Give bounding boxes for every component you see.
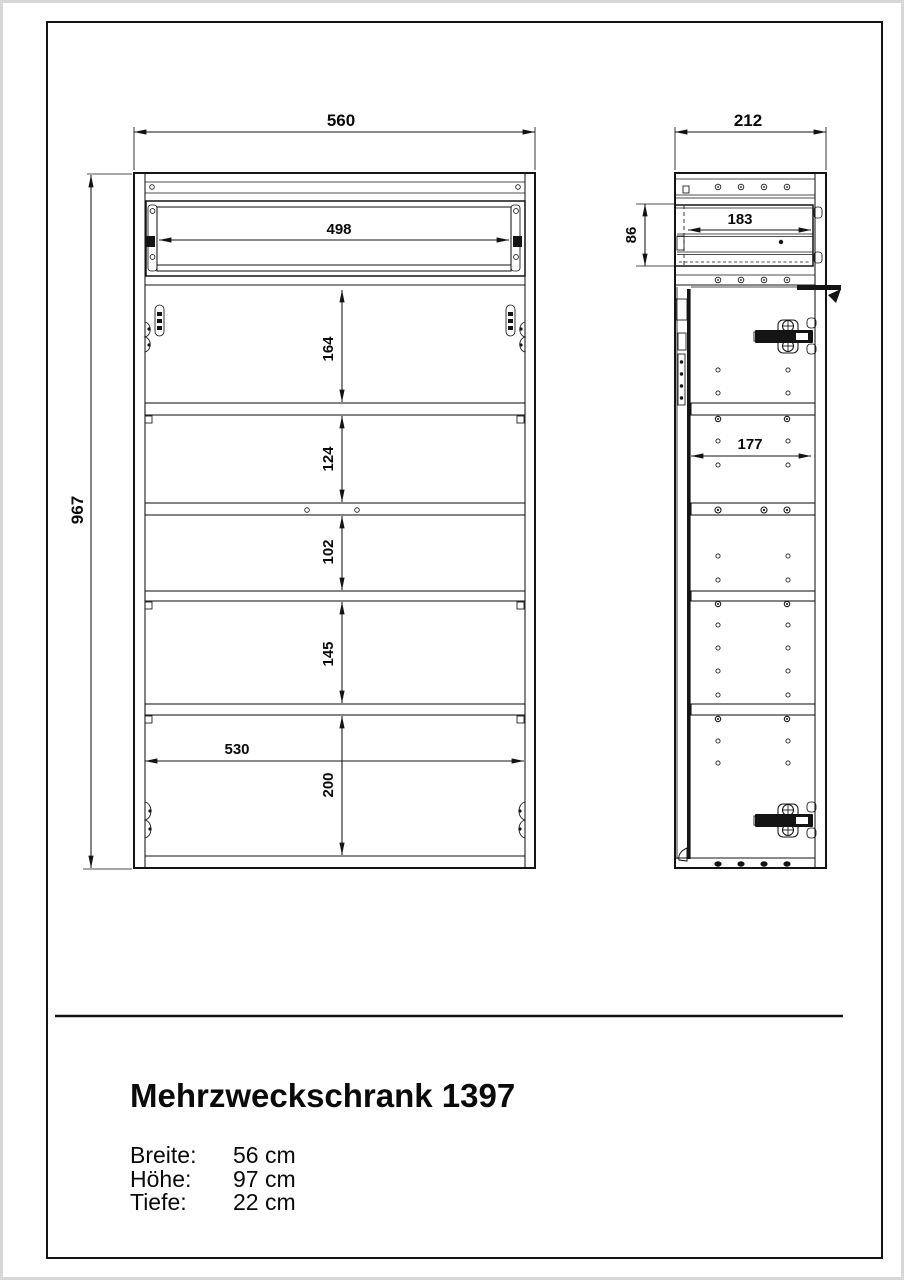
side-cabinet-outline: [675, 173, 826, 868]
dim-label-530: 530: [224, 741, 249, 758]
drawer-runner-left: [146, 205, 157, 271]
dim-label-967: 967: [68, 496, 87, 524]
spec-value-tiefe: 22 cm: [233, 1189, 296, 1215]
dim-interior-width: 530: [145, 741, 524, 761]
dim-label-183: 183: [727, 211, 752, 228]
dim-drawer-height: 86: [623, 204, 674, 266]
dim-front-total-width: 560: [134, 111, 535, 170]
front-drawer: [146, 201, 525, 276]
front-view: 560 967 498 164 124 102 145: [68, 111, 535, 869]
spec-label-tiefe: Tiefe:: [130, 1191, 233, 1215]
title-block: Mehrzweckschrank 1397 Breite:56 cm Höhe:…: [130, 1079, 515, 1215]
spec-list: Breite:56 cm Höhe:97 cm Tiefe:22 cm: [130, 1144, 515, 1215]
hinge-plate-top-left: [145, 305, 164, 352]
door-hinge-arm-top: [676, 299, 687, 405]
dim-label-212: 212: [734, 111, 762, 130]
front-hinges: [145, 305, 525, 838]
spec-row-tiefe: Tiefe:22 cm: [130, 1191, 515, 1215]
side-bottom-board-drawer: [675, 275, 815, 285]
dim-label-560: 560: [327, 111, 355, 130]
dim-compartment-4: 145: [320, 602, 342, 703]
side-bottom-board: [675, 858, 815, 867]
dim-compartment-2: 124: [320, 416, 342, 502]
front-cabinet-outline: [134, 173, 535, 868]
dim-label-498: 498: [326, 221, 351, 238]
dim-front-total-height: 967: [68, 174, 132, 869]
dim-drawer-depth: 183: [688, 211, 811, 230]
side-hinge-top: [754, 318, 816, 354]
dim-label-177: 177: [737, 436, 762, 453]
side-view: 212 183 86 177: [623, 111, 841, 868]
hinge-plate-top-right: [506, 305, 525, 352]
hinge-plate-bottom-right: [518, 802, 525, 838]
spec-label-breite: Breite:: [130, 1144, 233, 1168]
dim-compartment-1: 164: [320, 290, 342, 402]
spec-value-hoehe: 97 cm: [233, 1166, 296, 1192]
spec-row-hoehe: Höhe:97 cm: [130, 1168, 515, 1192]
dim-shelf-depth: 177: [691, 436, 811, 456]
dim-label-164: 164: [320, 336, 337, 362]
dim-label-102: 102: [320, 539, 337, 564]
product-title: Mehrzweckschrank 1397: [130, 1079, 515, 1112]
dim-label-86: 86: [623, 227, 640, 244]
side-hinge-bottom: [754, 802, 816, 838]
dim-label-124: 124: [320, 446, 337, 472]
dim-compartment-3: 102: [320, 516, 342, 590]
dim-label-145: 145: [320, 641, 337, 666]
wall-mount-hook: [797, 285, 841, 303]
spec-label-hoehe: Höhe:: [130, 1168, 233, 1192]
dim-drawer-width: 498: [159, 221, 509, 240]
drawer-runner-right: [511, 205, 522, 271]
drawing-sheet: 560 967 498 164 124 102 145: [0, 0, 904, 1280]
shelf-pin-holes: [716, 368, 790, 765]
hinge-plate-bottom-left: [145, 802, 152, 838]
spec-row-breite: Breite:56 cm: [130, 1144, 515, 1168]
dim-label-200: 200: [320, 772, 337, 797]
spec-value-breite: 56 cm: [233, 1142, 296, 1168]
dim-side-total-depth: 212: [675, 111, 826, 170]
dim-compartment-5: 200: [320, 716, 342, 855]
side-door-profile: [676, 287, 815, 861]
